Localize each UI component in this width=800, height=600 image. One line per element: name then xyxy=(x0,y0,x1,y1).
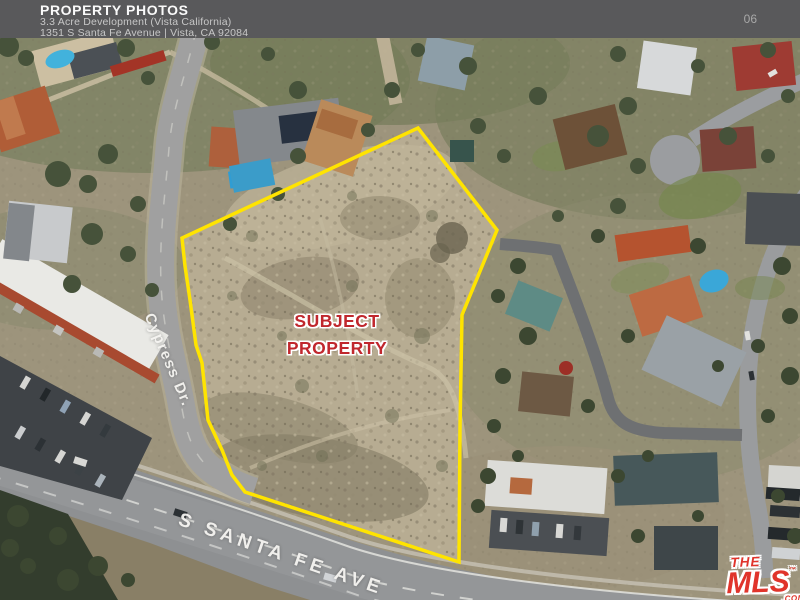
themls-logo: THE MLS™ .COM xyxy=(725,554,800,599)
subject-label-line2: PROPERTY xyxy=(287,335,387,362)
aerial-photo-illustration xyxy=(0,38,800,600)
page-number: 06 xyxy=(744,12,757,26)
page-header: PROPERTY PHOTOS 3.3 Acre Development (Vi… xyxy=(0,0,800,38)
subject-label-line1: SUBJECT xyxy=(287,308,387,335)
trademark-symbol: ™ xyxy=(789,566,796,573)
themls-logo-com: .COM xyxy=(782,594,800,600)
subject-property-label: SUBJECT PROPERTY xyxy=(287,308,387,362)
aerial-photo: SUBJECT PROPERTY Cypress Dr. S SANTA FE … xyxy=(0,38,800,600)
property-photos-page: PROPERTY PHOTOS 3.3 Acre Development (Vi… xyxy=(0,0,800,600)
